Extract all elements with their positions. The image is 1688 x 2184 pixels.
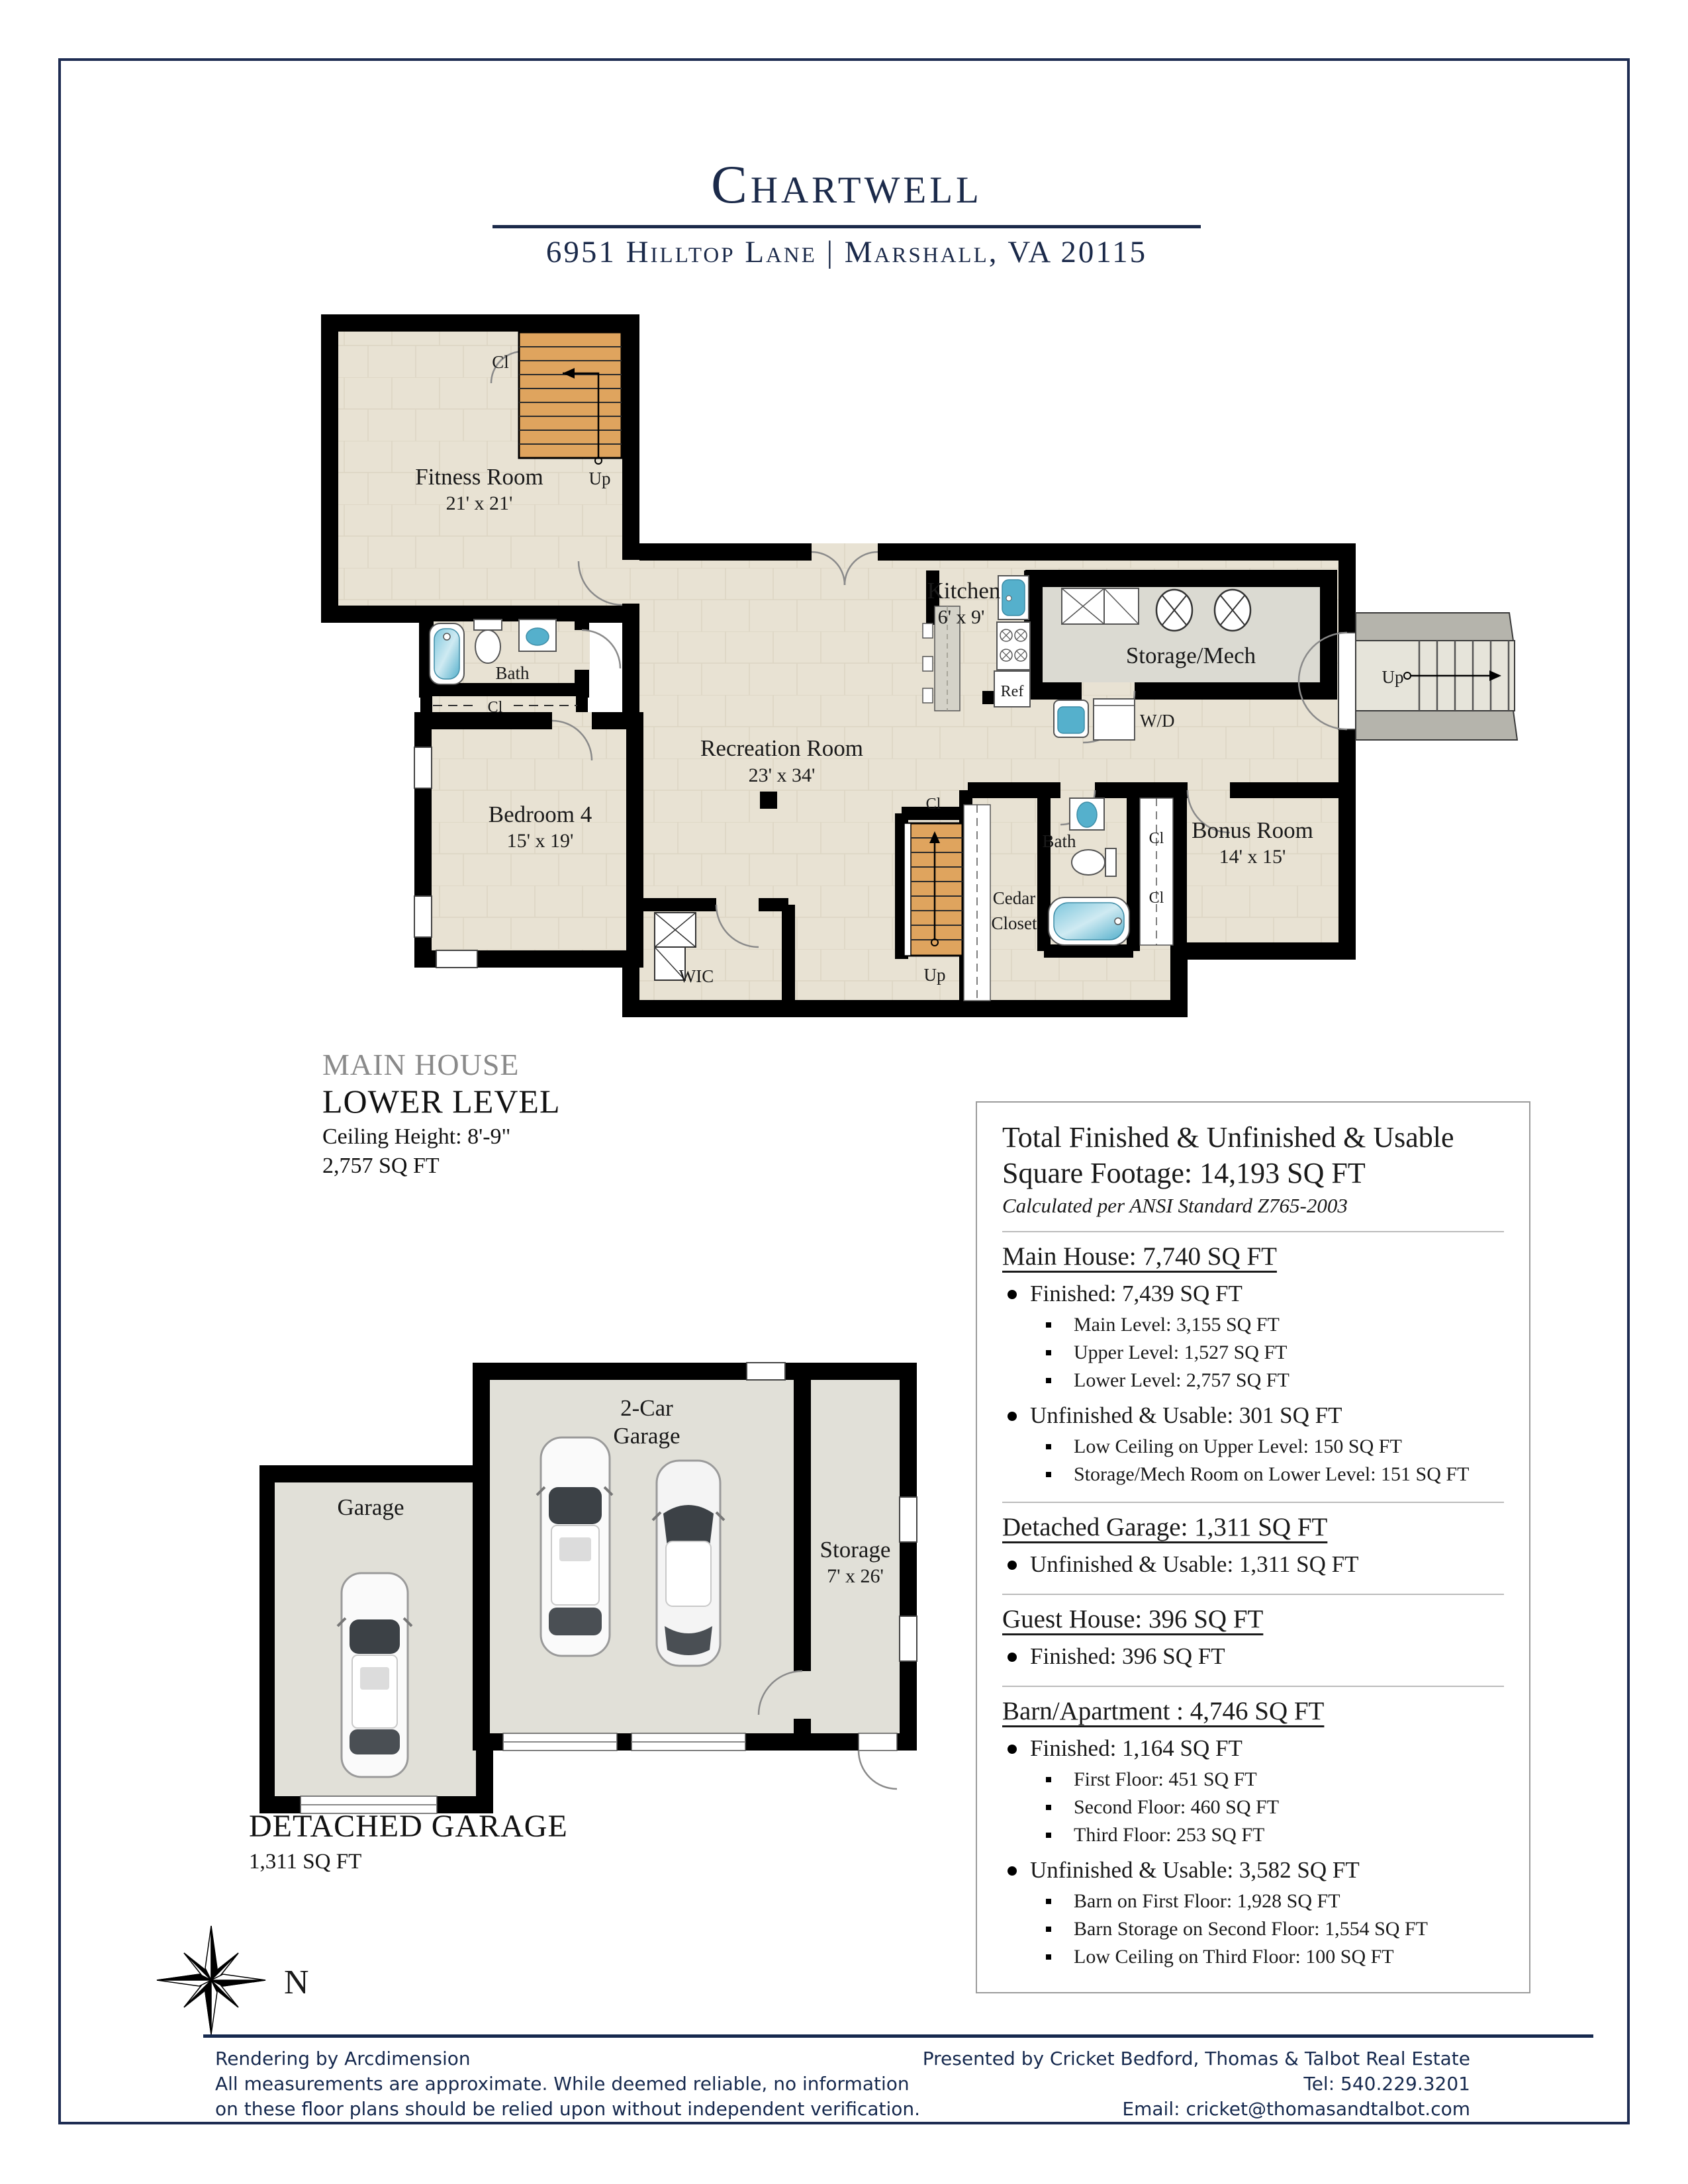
car-suv [537, 1437, 612, 1656]
property-address: 6951 Hilltop Lane | Marshall, VA 20115 [61, 234, 1632, 270]
svg-text:W/D: W/D [1140, 711, 1174, 731]
bullet: Finished: 1,164 SQ FT [1002, 1733, 1504, 1764]
svg-text:Cl: Cl [1149, 889, 1164, 907]
svg-text:Storage/Mech: Storage/Mech [1126, 643, 1256, 668]
sub-bullet: Upper Level: 1,527 SQ FT [1002, 1339, 1504, 1367]
section-barn-apartment: Barn/Apartment : 4,746 SQ FT [1002, 1696, 1504, 1726]
sub-bullet: First Floor: 451 SQ FT [1002, 1766, 1504, 1794]
bullet: Finished: 396 SQ FT [1002, 1641, 1504, 1672]
svg-text:Fitness Room: Fitness Room [415, 464, 543, 490]
sub-bullet: Main Level: 3,155 SQ FT [1002, 1311, 1504, 1339]
svg-text:Bonus Room: Bonus Room [1192, 817, 1313, 843]
svg-text:Up: Up [924, 965, 946, 985]
svg-text:Bedroom 4: Bedroom 4 [489, 801, 592, 827]
svg-text:Cedar: Cedar [993, 888, 1035, 908]
main-house-caption: MAIN HOUSE LOWER LEVEL Ceiling Height: 8… [322, 1047, 561, 1179]
footer-left: Rendering by Arcdimension All measuremen… [215, 2046, 920, 2122]
divider [1002, 1231, 1504, 1232]
svg-text:6' x 9': 6' x 9' [938, 606, 985, 628]
svg-text:Cl: Cl [492, 352, 509, 372]
page-title: Chartwell [61, 154, 1632, 216]
lower-level-area: 2,757 SQ FT [322, 1154, 561, 1179]
svg-text:Up: Up [1382, 667, 1404, 687]
svg-text:Bath: Bath [496, 663, 530, 683]
summary-title-line2: Square Footage: 14,193 SQ FT [1002, 1156, 1504, 1191]
divider [1002, 1502, 1504, 1503]
stairs-fitness [519, 332, 622, 464]
main-house-label: MAIN HOUSE [322, 1047, 561, 1082]
svg-text:Garage: Garage [337, 1494, 404, 1520]
svg-text:Storage: Storage [820, 1537, 891, 1563]
compass-star [157, 1926, 265, 2034]
svg-text:Garage: Garage [613, 1423, 680, 1449]
svg-text:15' x 19': 15' x 19' [507, 830, 574, 852]
svg-text:23' x 34': 23' x 34' [749, 764, 816, 786]
square-footage-summary: Total Finished & Unfinished & Usable Squ… [976, 1101, 1530, 1993]
summary-note: Calculated per ANSI Standard Z765-2003 [1002, 1194, 1504, 1218]
detached-garage-label: DETACHED GARAGE [249, 1808, 568, 1844]
footer-right: Presented by Cricket Bedford, Thomas & T… [923, 2046, 1470, 2122]
ceiling-height: Ceiling Height: 8'-9" [322, 1124, 561, 1150]
svg-text:Cl: Cl [1149, 830, 1164, 847]
plan-cutout [1188, 960, 1380, 1034]
divider [1002, 1594, 1504, 1595]
floorplan-page: { "header": { "title": "Chartwell", "add… [0, 0, 1688, 2184]
svg-text:Kitchen: Kitchen [927, 578, 1001, 604]
stairs-center [904, 823, 962, 956]
footer-rule [203, 2034, 1593, 2038]
svg-text:2-Car: 2-Car [620, 1395, 673, 1421]
sub-bullet: Low Ceiling on Third Floor: 100 SQ FT [1002, 1943, 1504, 1971]
sub-bullet: Barn Storage on Second Floor: 1,554 SQ F… [1002, 1915, 1504, 1943]
svg-text:WIC: WIC [679, 966, 714, 986]
sub-bullet: Storage/Mech Room on Lower Level: 151 SQ… [1002, 1461, 1504, 1488]
sub-bullet: Lower Level: 2,757 SQ FT [1002, 1367, 1504, 1394]
divider [1002, 1686, 1504, 1687]
svg-text:Ref: Ref [1001, 683, 1024, 700]
compass-north-label: N [284, 1964, 309, 2001]
compass-rose: N [152, 1921, 350, 2053]
car-sedan [653, 1461, 724, 1666]
footer-rendering-credit: Rendering by Arcdimension [215, 2046, 920, 2071]
car-left-garage [338, 1573, 412, 1777]
section-detached-garage: Detached Garage: 1,311 SQ FT [1002, 1512, 1504, 1542]
page-border: Chartwell 6951 Hilltop Lane | Marshall, … [58, 58, 1630, 2124]
stairs-exterior [1356, 613, 1517, 740]
bullet: Unfinished & Usable: 1,311 SQ FT [1002, 1549, 1504, 1580]
detached-garage-area: 1,311 SQ FT [249, 1850, 568, 1874]
summary-title-line1: Total Finished & Unfinished & Usable [1002, 1120, 1504, 1156]
sub-bullet: Second Floor: 460 SQ FT [1002, 1794, 1504, 1821]
sub-bullet: Third Floor: 253 SQ FT [1002, 1821, 1504, 1849]
bullet: Unfinished & Usable: 3,582 SQ FT [1002, 1854, 1504, 1886]
svg-text:Cl: Cl [488, 699, 503, 716]
svg-text:Cl: Cl [926, 796, 941, 813]
sub-bullet: Barn on First Floor: 1,928 SQ FT [1002, 1888, 1504, 1915]
title-underline [492, 225, 1201, 228]
detached-garage-plan: 2-Car Garage Garage Storage 7' x 26' [259, 1361, 928, 1818]
section-guest-house: Guest House: 396 SQ FT [1002, 1604, 1504, 1634]
section-main-house: Main House: 7,740 SQ FT [1002, 1242, 1504, 1271]
bullet: Unfinished & Usable: 301 SQ FT [1002, 1400, 1504, 1432]
bullet: Finished: 7,439 SQ FT [1002, 1278, 1504, 1310]
svg-text:Bath: Bath [1043, 831, 1076, 851]
footer-presented-by: Presented by Cricket Bedford, Thomas & T… [923, 2046, 1470, 2071]
footer-phone: Tel: 540.229.3201 [923, 2071, 1470, 2097]
detached-garage-caption: DETACHED GARAGE 1,311 SQ FT [249, 1808, 568, 1874]
footer-disclaimer-line2: on these floor plans should be relied up… [215, 2097, 920, 2122]
lower-level-label: LOWER LEVEL [322, 1082, 561, 1120]
footer-disclaimer-line1: All measurements are approximate. While … [215, 2071, 920, 2097]
svg-text:7' x 26': 7' x 26' [827, 1565, 884, 1587]
svg-text:21' x 21': 21' x 21' [446, 492, 513, 514]
main-house-lower-level-plan: Fitness Room 21' x 21' Cl Up Bath Cl Bed… [320, 314, 1519, 1035]
structural-column [760, 792, 777, 809]
svg-text:14' x 15': 14' x 15' [1219, 846, 1286, 868]
footer-email: Email: cricket@thomasandtalbot.com [923, 2097, 1470, 2122]
svg-text:Up: Up [589, 469, 611, 488]
sub-bullet: Low Ceiling on Upper Level: 150 SQ FT [1002, 1433, 1504, 1461]
svg-text:Closet: Closet [991, 913, 1037, 933]
svg-text:Recreation Room: Recreation Room [700, 735, 863, 761]
